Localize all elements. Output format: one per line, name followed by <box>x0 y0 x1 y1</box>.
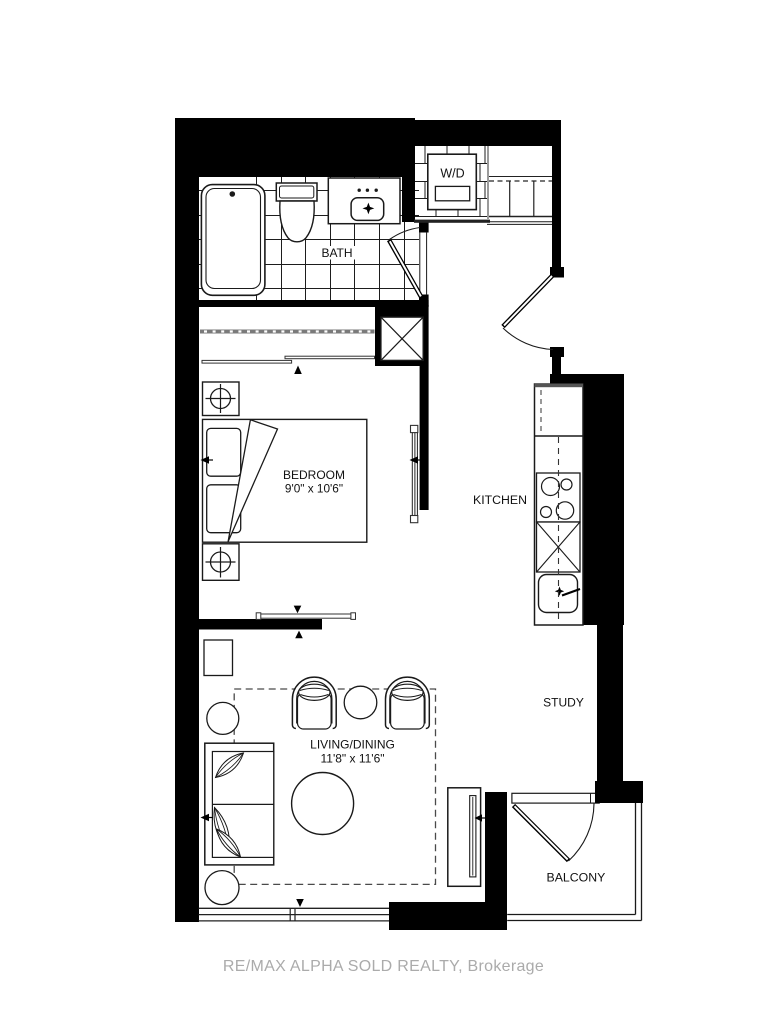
svg-text:W/D: W/D <box>440 167 464 181</box>
svg-text:KITCHEN: KITCHEN <box>473 493 527 507</box>
svg-text:BALCONY: BALCONY <box>547 871 606 885</box>
svg-text:BEDROOM: BEDROOM <box>283 468 345 482</box>
svg-text:STUDY: STUDY <box>543 696 584 710</box>
svg-text:RE/MAX ALPHA SOLD REALTY, Brok: RE/MAX ALPHA SOLD REALTY, Brokerage <box>223 958 544 975</box>
svg-text:11'8" x 11'6": 11'8" x 11'6" <box>320 752 384 766</box>
svg-text:LIVING/DINING: LIVING/DINING <box>310 738 395 752</box>
svg-text:BATH: BATH <box>321 246 352 260</box>
svg-text:9'0" x 10'6": 9'0" x 10'6" <box>285 482 343 496</box>
